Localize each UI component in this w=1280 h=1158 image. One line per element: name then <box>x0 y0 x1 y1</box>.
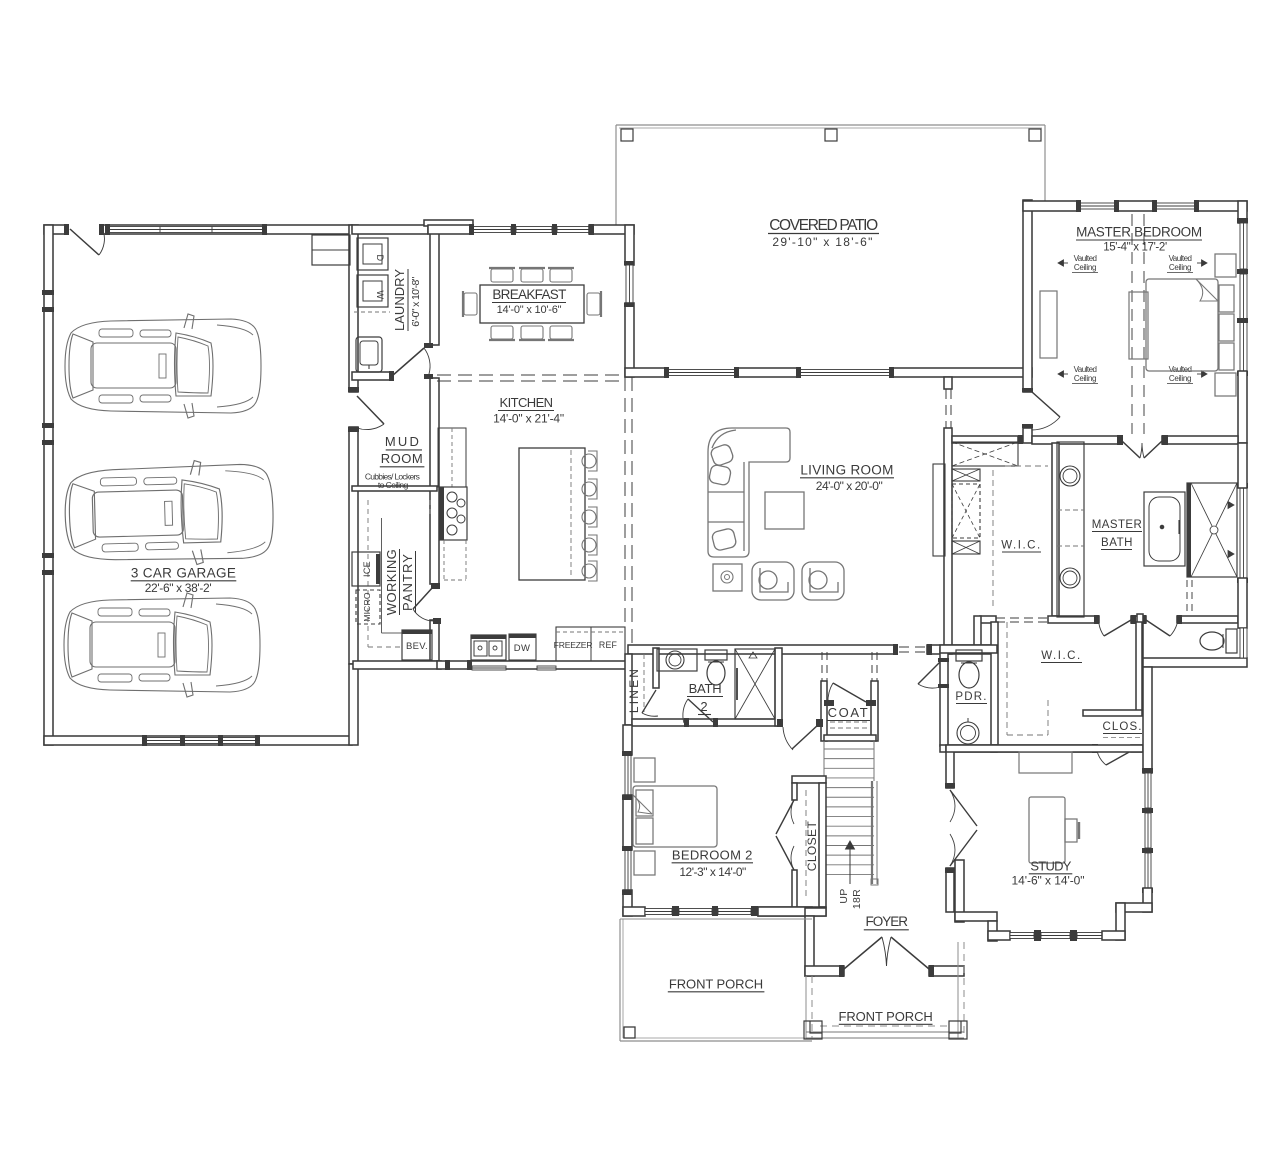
svg-text:29'-10" x 18'-6": 29'-10" x 18'-6" <box>772 235 873 249</box>
svg-text:WORKING: WORKING <box>384 549 399 615</box>
svg-text:CLOSET: CLOSET <box>805 821 819 872</box>
svg-text:LINEN: LINEN <box>627 667 641 713</box>
svg-text:6'-0" x 10'-8": 6'-0" x 10'-8" <box>410 276 422 326</box>
svg-text:18R: 18R <box>851 889 863 909</box>
svg-text:FRONT PORCH: FRONT PORCH <box>669 977 763 992</box>
svg-text:FREEZER: FREEZER <box>554 640 593 650</box>
svg-text:MICRO: MICRO <box>362 592 372 622</box>
svg-text:Ceiling: Ceiling <box>1074 263 1096 272</box>
svg-text:Vaulted: Vaulted <box>1074 365 1097 374</box>
svg-text:REF: REF <box>599 640 618 650</box>
svg-text:Ceiling: Ceiling <box>1169 263 1191 272</box>
svg-text:3 CAR GARAGE: 3 CAR GARAGE <box>131 566 236 581</box>
svg-text:DW: DW <box>514 643 530 654</box>
svg-text:Vaulted: Vaulted <box>1074 254 1097 263</box>
svg-text:ROOM: ROOM <box>381 451 424 466</box>
svg-text:FRONT PORCH: FRONT PORCH <box>838 1009 932 1024</box>
svg-text:W.I.C.: W.I.C. <box>1041 650 1082 662</box>
svg-text:14'-6" x 14'-0": 14'-6" x 14'-0" <box>1012 873 1085 887</box>
svg-text:MUD: MUD <box>385 434 421 449</box>
svg-text:BREAKFAST: BREAKFAST <box>492 287 566 302</box>
svg-text:FOYER: FOYER <box>866 914 909 929</box>
svg-text:BEV.: BEV. <box>406 641 428 652</box>
svg-text:Ceiling: Ceiling <box>1074 374 1096 383</box>
svg-text:W.I.C.: W.I.C. <box>1001 540 1042 552</box>
svg-text:MASTER BEDROOM: MASTER BEDROOM <box>1076 225 1202 240</box>
svg-text:LIVING ROOM: LIVING ROOM <box>800 463 893 478</box>
svg-text:D: D <box>375 255 385 262</box>
svg-text:STUDY: STUDY <box>1030 858 1071 873</box>
svg-text:LAUNDRY: LAUNDRY <box>392 269 407 331</box>
svg-text:Ceiling: Ceiling <box>1169 374 1191 383</box>
svg-text:COAT: COAT <box>828 705 870 720</box>
svg-text:Vaulted: Vaulted <box>1169 365 1192 374</box>
svg-text:PANTRY: PANTRY <box>400 553 415 611</box>
svg-text:BEDROOM 2: BEDROOM 2 <box>672 848 753 863</box>
svg-text:KITCHEN: KITCHEN <box>500 395 553 410</box>
svg-text:14'-0" x 10'-6": 14'-0" x 10'-6" <box>497 304 562 316</box>
svg-text:COVERED PATIO: COVERED PATIO <box>769 217 878 234</box>
svg-text:22'-6" x 38'-2': 22'-6" x 38'-2' <box>145 581 212 595</box>
svg-text:BATH: BATH <box>1101 537 1133 549</box>
svg-text:14'-0" x 21'-4": 14'-0" x 21'-4" <box>493 412 564 426</box>
svg-text:2: 2 <box>700 699 707 714</box>
svg-text:to Ceiling: to Ceiling <box>378 480 409 490</box>
svg-text:UP: UP <box>838 888 850 903</box>
svg-text:CLOS.: CLOS. <box>1102 721 1142 733</box>
svg-text:W: W <box>375 291 385 300</box>
svg-text:15'-4" x 17'-2': 15'-4" x 17'-2' <box>1103 242 1167 254</box>
svg-text:Vaulted: Vaulted <box>1169 254 1192 263</box>
svg-text:ICE: ICE <box>362 561 372 577</box>
svg-text:PDR.: PDR. <box>955 691 987 703</box>
svg-text:12'-3" x 14'-0": 12'-3" x 14'-0" <box>679 865 746 879</box>
svg-text:24'-0" x 20'-0": 24'-0" x 20'-0" <box>816 479 883 493</box>
svg-text:BATH: BATH <box>689 681 722 696</box>
svg-text:MASTER: MASTER <box>1092 519 1142 531</box>
